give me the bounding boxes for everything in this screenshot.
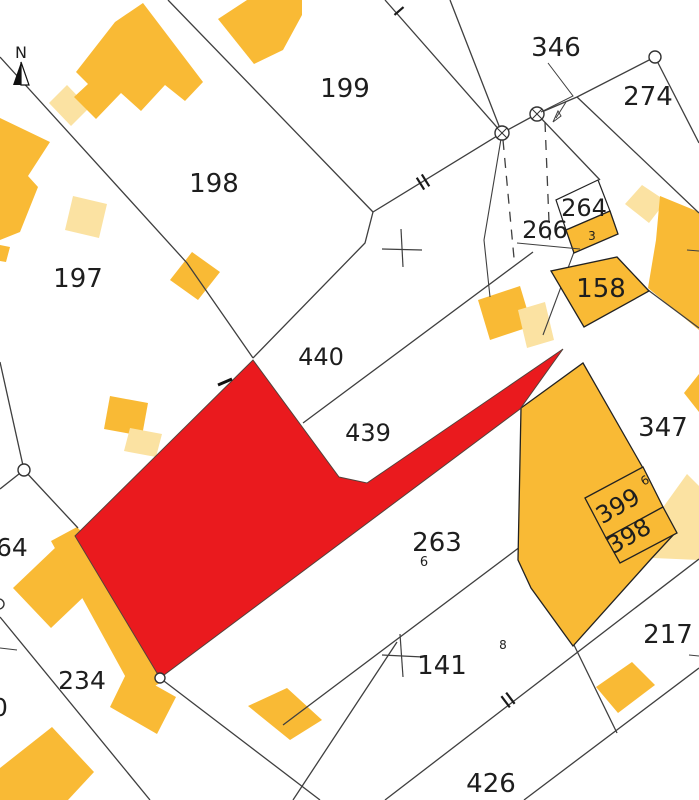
survey-cross (382, 229, 422, 267)
leader-line-346 (541, 63, 573, 112)
lane-edge-west (484, 133, 502, 297)
road-edge-right (450, 0, 501, 131)
selected-parcel-highlight[interactable] (75, 349, 563, 678)
parcel-label-158: 158 (576, 274, 626, 304)
parcel-label-266: 266 (522, 216, 568, 244)
parcel-label-426: 426 (466, 769, 516, 799)
building-light (65, 196, 107, 238)
edge-dash-right-2 (689, 655, 699, 656)
building (684, 374, 699, 412)
cadastral-map: N199198197346274264266158440439347399398… (0, 0, 699, 800)
building (0, 245, 10, 262)
survey-point-circled-x (530, 107, 544, 121)
building (0, 118, 50, 240)
boundary-64 (0, 362, 78, 528)
parcel-label-263: 263 (412, 528, 462, 558)
building-light (124, 428, 162, 457)
north-letter: N (15, 43, 27, 62)
parcel-label-439: 439 (345, 419, 391, 447)
building (596, 662, 655, 713)
survey-point-circle-clipped (0, 599, 4, 609)
building-light (518, 302, 554, 348)
sub-label-263-6: 6 (420, 555, 428, 570)
building (170, 252, 220, 300)
parcel-label-197: 197 (53, 264, 103, 294)
survey-point-circled-x (495, 126, 509, 140)
parcel-label-198: 198 (189, 169, 239, 199)
parcel-label-64-clipped: 64 (0, 533, 28, 562)
sub-label-141-8: 8 (499, 638, 507, 652)
double-tick-mark (501, 693, 514, 708)
building (248, 688, 322, 740)
survey-point-circle (18, 464, 30, 476)
building (104, 396, 148, 436)
building (648, 196, 699, 330)
sub-label-3: 3 (588, 229, 596, 243)
parcel-label-274: 274 (623, 82, 673, 112)
survey-point-circle (649, 51, 661, 63)
building (74, 3, 203, 119)
parcel-label-264: 264 (561, 194, 607, 222)
dashed-boundary-1 (503, 140, 514, 258)
parcel-label-199: 199 (320, 74, 370, 104)
road-edge-left (385, 0, 502, 133)
building (110, 670, 176, 734)
map-canvas: N199198197346274264266158440439347399398… (0, 0, 699, 800)
parcel-label-234: 234 (58, 666, 106, 695)
building (0, 727, 94, 800)
parcel-label-217: 217 (643, 620, 693, 650)
single-tick-mark (394, 7, 403, 15)
parcel-label-440: 440 (298, 343, 344, 371)
parcel-label-0-clipped: 0 (0, 693, 8, 722)
parcel-label-141: 141 (417, 651, 467, 681)
parcel-label-347: 347 (638, 413, 688, 443)
building (218, 0, 302, 64)
parcel-label-346: 346 (531, 33, 581, 63)
edge-dash-left (0, 648, 17, 650)
boundary-197-198 (0, 57, 253, 358)
survey-point-circle (155, 673, 165, 683)
